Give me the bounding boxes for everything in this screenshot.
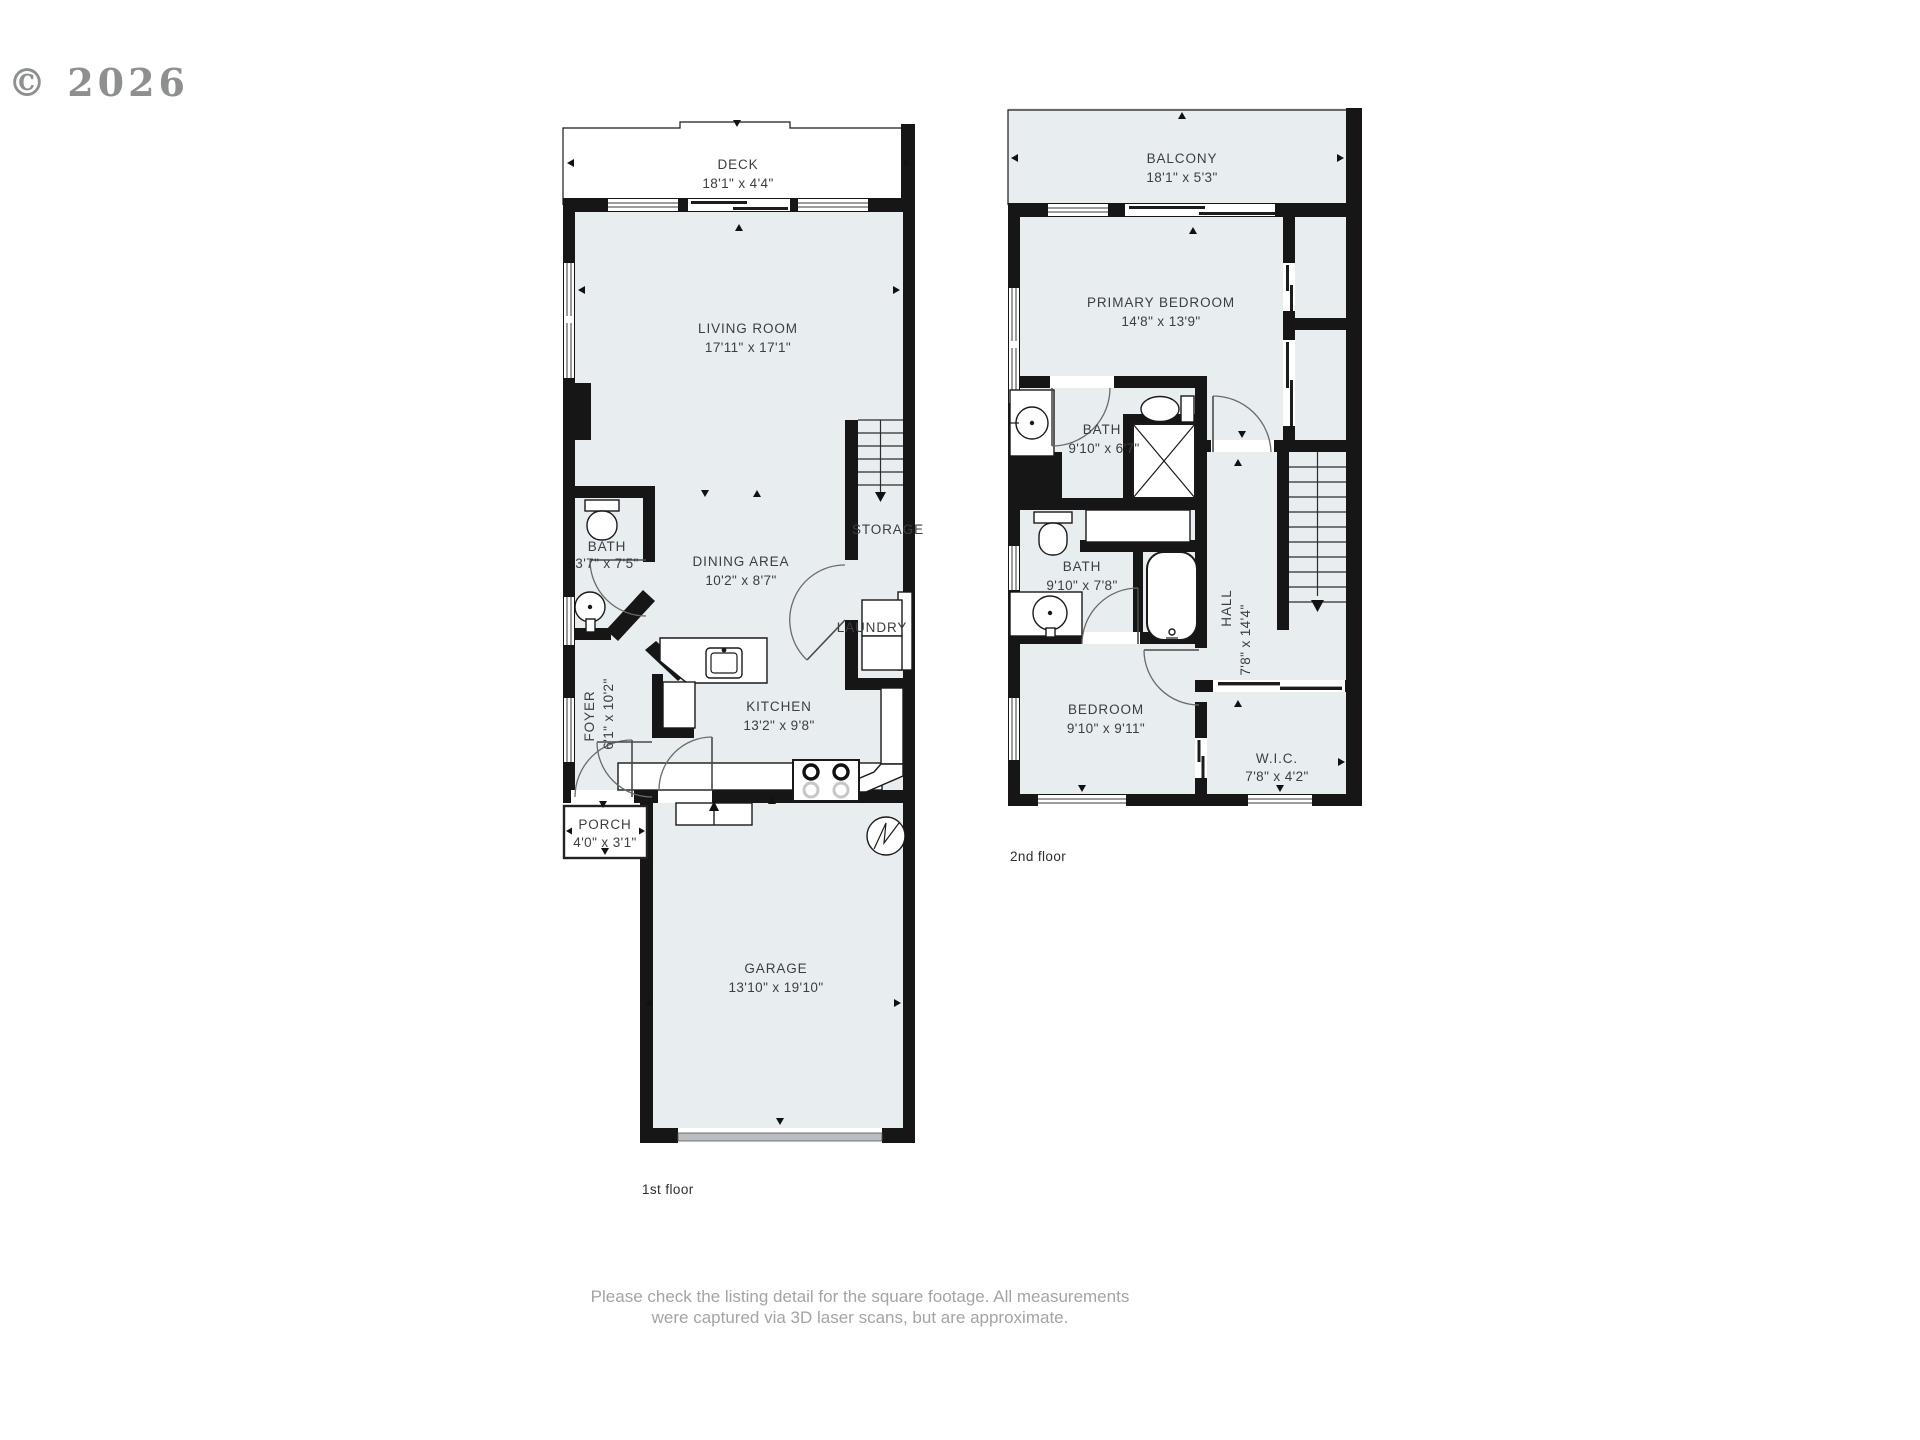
bedroom-dims: 9'10" x 9'11" — [1067, 721, 1145, 736]
hall-dims: 7'8" x 14'4" — [1238, 604, 1253, 675]
closet-slider-icon — [1283, 263, 1295, 426]
stove-icon — [793, 760, 859, 801]
bath1f-dims: 3'7" x 7'5" — [575, 556, 638, 571]
wic-dims: 7'8" x 4'2" — [1245, 769, 1308, 784]
kitchen-cabinet — [663, 682, 695, 728]
deck-label: DECK — [717, 157, 758, 172]
shower-icon — [1133, 424, 1195, 498]
dining-area-label: DINING AREA — [693, 554, 790, 569]
floor1-plan: DECK 18'1" x 4'4" — [563, 122, 924, 1197]
bathtub-icon — [1147, 552, 1197, 640]
disclaimer-text: Please check the listing detail for the … — [591, 1286, 1130, 1328]
storage-label: STORAGE — [852, 522, 924, 537]
vanity-sink-icon — [1010, 592, 1082, 637]
toilet-icon — [585, 500, 619, 540]
garage-label: GARAGE — [744, 961, 807, 976]
balcony-label: BALCONY — [1147, 151, 1218, 166]
linen-closet — [1086, 510, 1190, 542]
primary-bedroom-label: PRIMARY BEDROOM — [1087, 295, 1235, 310]
sliding-door-icon — [1125, 204, 1275, 216]
kitchen-counter-right — [881, 688, 903, 764]
foyer-label: FOYER — [582, 690, 597, 741]
sliding-door-icon — [1213, 680, 1345, 692]
wic-label: W.I.C. — [1256, 751, 1298, 766]
floor2-caption: 2nd floor — [1010, 849, 1066, 864]
dining-area-dims: 10'2" x 8'7" — [705, 573, 776, 588]
bath1f-label: BATH — [588, 539, 627, 554]
disclaimer-line2: were captured via 3D laser scans, but ar… — [591, 1307, 1130, 1328]
primary-bedroom-dims: 14'8" x 13'9" — [1121, 314, 1200, 329]
hall-label: HALL — [1219, 589, 1234, 626]
disclaimer-line1: Please check the listing detail for the … — [591, 1286, 1130, 1307]
bath1-label: BATH — [1083, 422, 1122, 437]
porch-dims: 4'0" x 3'1" — [573, 835, 636, 850]
floor1-caption: 1st floor — [642, 1182, 694, 1197]
toilet-icon — [1141, 396, 1194, 422]
kitchen-label: KITCHEN — [746, 699, 812, 714]
bath2-dims: 9'10" x 7'8" — [1046, 578, 1117, 593]
garage-dims: 13'10" x 19'10" — [728, 980, 823, 995]
garage-step — [676, 801, 752, 825]
deck-dims: 18'1" x 4'4" — [702, 176, 773, 191]
vanity-sink-icon — [1010, 390, 1054, 456]
water-heater-icon — [867, 817, 905, 855]
garage-door-icon — [678, 1128, 882, 1143]
living-room-dims: 17'11" x 17'1" — [705, 340, 791, 355]
kitchen-dims: 13'2" x 9'8" — [743, 718, 814, 733]
room-storage: STORAGE — [852, 522, 924, 537]
foyer-dims: 6'1" x 10'2" — [601, 678, 616, 749]
porch-label: PORCH — [578, 817, 631, 832]
floorplan-drawing: DECK 18'1" x 4'4" — [0, 0, 1920, 1440]
laundry-label: LAUNDRY — [837, 620, 908, 635]
floor2-plan: BALCONY 18'1" x 5'3" — [1008, 108, 1362, 864]
kitchen-sink-icon — [706, 648, 742, 678]
bedroom-label: BEDROOM — [1068, 702, 1144, 717]
sliding-door-icon — [688, 199, 790, 211]
bath2-label: BATH — [1063, 559, 1102, 574]
living-room-label: LIVING ROOM — [698, 321, 798, 336]
balcony-dims: 18'1" x 5'3" — [1146, 170, 1217, 185]
bath1-dims: 9'10" x 6'7" — [1068, 441, 1139, 456]
dryer-icon — [862, 636, 902, 670]
floorplan-page: © 2026 DECK 18'1" x 4'4" — [0, 0, 1920, 1440]
room-deck: DECK 18'1" x 4'4" — [563, 122, 915, 205]
sliding-door-icon — [1195, 738, 1207, 778]
